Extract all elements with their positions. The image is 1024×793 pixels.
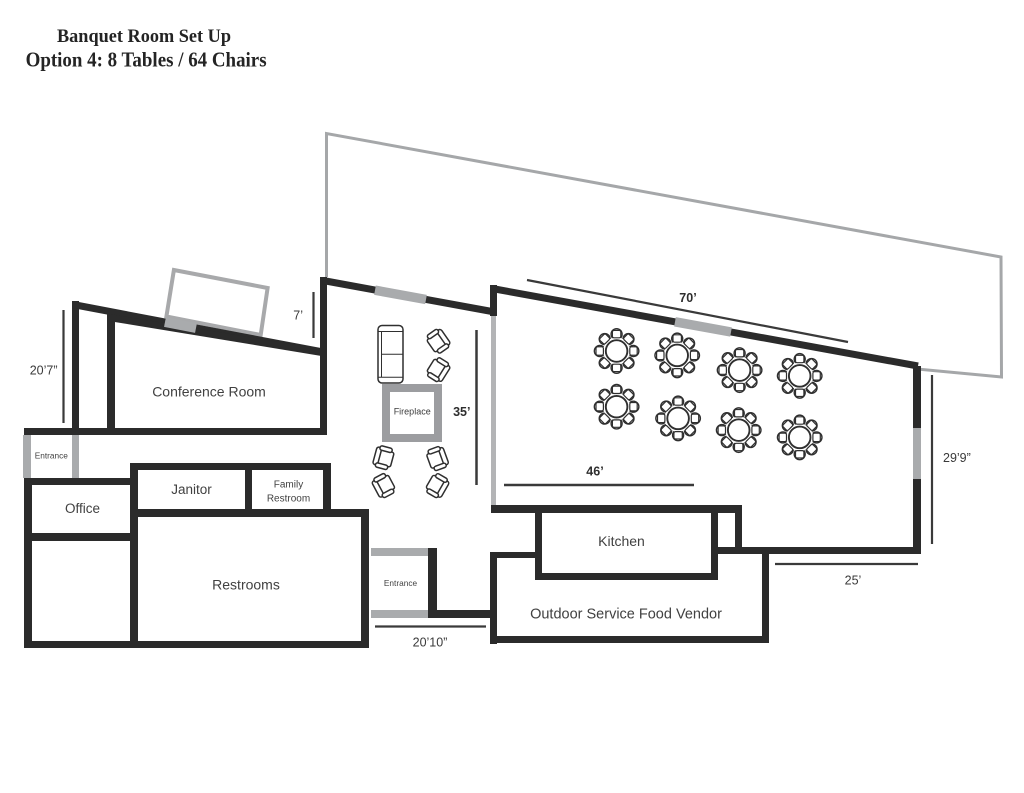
svg-text:20’10”: 20’10” [413,636,448,650]
svg-text:Banquet Room Set Up: Banquet Room Set Up [57,26,231,47]
svg-text:46’: 46’ [586,465,603,479]
svg-text:Option 4: 8 Tables / 64 Chairs: Option 4: 8 Tables / 64 Chairs [26,48,267,72]
svg-text:Office: Office [65,501,100,516]
svg-text:Kitchen: Kitchen [598,533,645,549]
svg-text:Fireplace: Fireplace [394,407,431,417]
svg-text:Entrance: Entrance [35,451,69,461]
svg-text:Conference Room: Conference Room [152,384,266,400]
svg-text:35’: 35’ [453,405,470,419]
svg-text:7’: 7’ [293,309,303,323]
svg-text:20’7”: 20’7” [30,364,58,378]
svg-text:Janitor: Janitor [171,482,212,497]
svg-text:25’: 25’ [845,574,862,588]
svg-text:29’9”: 29’9” [943,451,971,465]
svg-text:Entrance: Entrance [384,578,418,588]
svg-text:Outdoor Service Food Vendor: Outdoor Service Food Vendor [530,607,722,623]
svg-text:Family: Family [274,480,303,491]
svg-text:Restroom: Restroom [267,494,310,505]
svg-text:Restrooms: Restrooms [212,577,280,593]
svg-text:70’: 70’ [679,291,696,305]
